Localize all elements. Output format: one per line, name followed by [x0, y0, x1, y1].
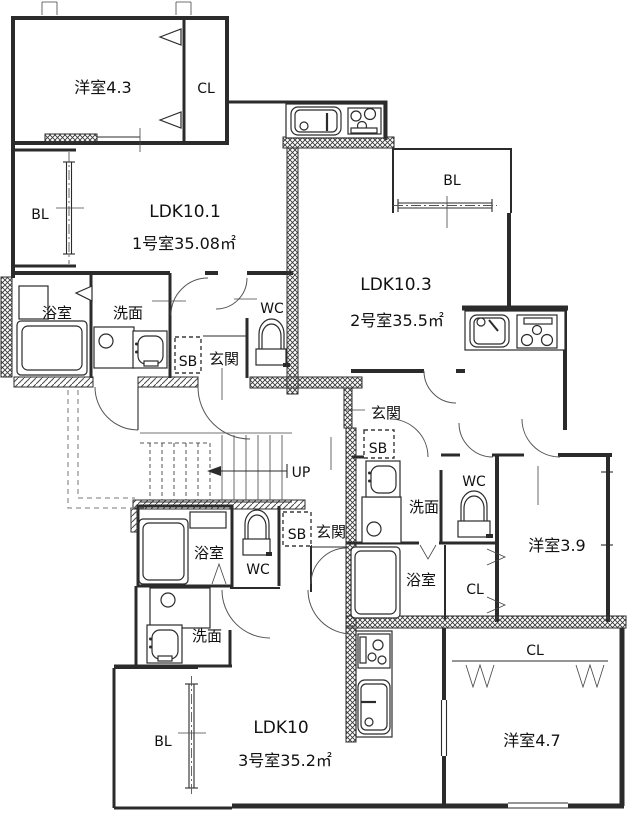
label-unit3-wc: WC [246, 562, 270, 578]
label-unit3-bath: 浴室 [194, 544, 224, 562]
stove-icon [348, 108, 381, 134]
label-unit1-entrance: 玄関 [209, 350, 239, 368]
label-unit3-entrance: 玄関 [316, 523, 346, 541]
label-unit3-area: 3号室35.2㎡ [238, 751, 332, 770]
label-unit3-bedroom: 洋室4.7 [503, 731, 560, 750]
label-unit1-closet: CL [197, 81, 215, 97]
kitchen-sink-icon [291, 107, 341, 135]
washing-machine-unit2 [362, 497, 401, 543]
kitchen-sink-icon [358, 680, 390, 734]
label-unit3-washroom: 洗面 [192, 627, 222, 645]
label-unit2-wc: WC [462, 474, 486, 490]
floor-plan: 洋室4.3 CL BL LDK10.1 1号室35.08㎡ 浴室 洗面 WC S… [0, 0, 632, 824]
stairs-up-arrow [207, 464, 287, 478]
label-unit2-closet: CL [466, 582, 484, 598]
stove-icon [358, 634, 390, 668]
toilet-unit2 [458, 491, 493, 538]
stairs [140, 433, 292, 502]
label-unit1-wc: WC [260, 301, 284, 317]
label-unit1-balcony: BL [31, 207, 49, 223]
label-unit2-washroom: 洗面 [409, 498, 439, 516]
washing-machine-unit3 [150, 588, 210, 628]
label-unit2-shoebox: SB [369, 441, 388, 457]
kitchen-counter-unit3 [356, 631, 392, 737]
label-unit1-area: 1号室35.08㎡ [132, 234, 236, 253]
kitchen-counter-unit2 [465, 311, 565, 350]
toilet-unit1 [256, 319, 290, 367]
toilet-unit3 [243, 510, 272, 556]
label-unit1-washroom: 洗面 [113, 304, 143, 322]
label-unit1-shoebox: SB [179, 354, 198, 370]
label-unit1-ldk: LDK10.1 [149, 202, 221, 222]
label-unit1-bath: 浴室 [42, 304, 72, 322]
label-unit2-area: 2号室35.5㎡ [350, 311, 444, 330]
party-wall-L [283, 137, 394, 394]
label-unit3-ldk: LDK10 [253, 718, 308, 738]
washbasin-unit1 [133, 331, 167, 368]
washbasin-unit2 [366, 461, 400, 497]
washbasin-unit3 [147, 625, 182, 663]
label-unit3-balcony: BL [154, 734, 172, 750]
label-stairs-up: UP [292, 465, 311, 481]
upper-floor-outline [42, 2, 191, 15]
label-unit3-shoebox: SB [288, 527, 307, 543]
unit1-balcony-slider [56, 152, 84, 264]
kitchen-counter-unit1 [286, 104, 384, 138]
label-unit3-closet: CL [526, 643, 544, 659]
bathtub-unit2 [351, 547, 400, 618]
bathtub-unit1 [17, 286, 87, 375]
kitchen-sink-icon [470, 315, 509, 347]
stove-icon [517, 315, 557, 348]
label-unit2-entrance: 玄関 [371, 404, 401, 422]
porch-outline [68, 390, 144, 508]
label-unit1-bedroom: 洋室4.3 [74, 78, 131, 97]
washing-machine-unit1 [94, 327, 134, 368]
label-unit2-ldk: LDK10.3 [360, 275, 432, 295]
label-unit2-bedroom: 洋室3.9 [528, 536, 585, 555]
label-unit2-balcony: BL [443, 173, 461, 189]
label-unit2-bath: 浴室 [406, 571, 436, 589]
